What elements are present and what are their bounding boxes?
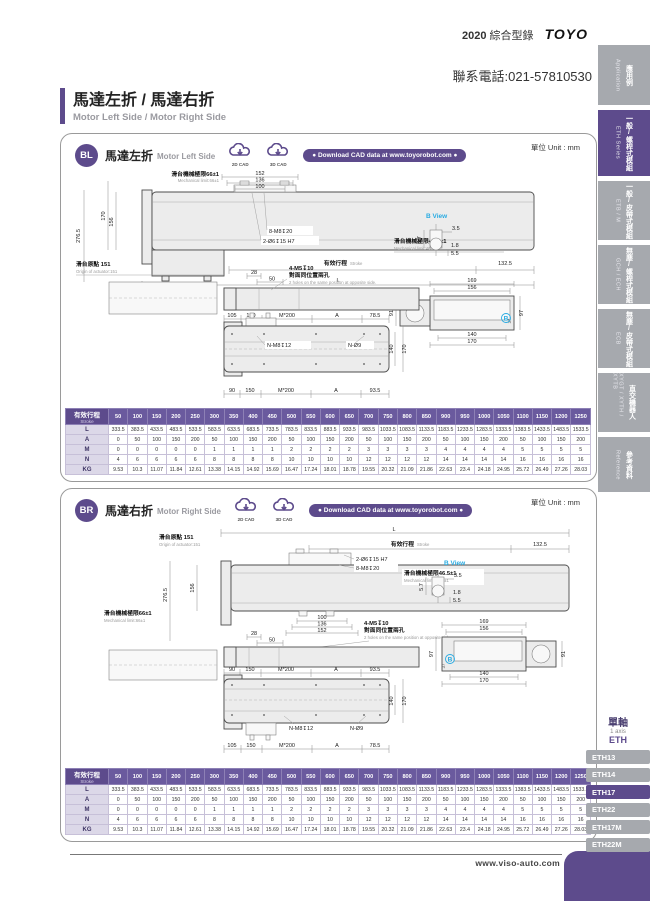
N-cell: 8 — [263, 815, 282, 825]
KG-cell: 11.07 — [147, 465, 166, 475]
KG-cell: 14.15 — [224, 825, 243, 835]
L-cell: 683.5 — [243, 425, 262, 435]
tab-label-zh: 直交機器人 — [627, 385, 637, 420]
ev-169: 169 — [479, 619, 488, 625]
dim-170: 170 — [101, 211, 107, 220]
L-cell: 633.5 — [224, 425, 243, 435]
A-cell: 150 — [320, 435, 339, 445]
stroke-header-cell: 600 — [320, 769, 339, 785]
stroke-en: Stroke — [350, 261, 363, 266]
N-cell: 12 — [417, 455, 436, 465]
A-cell: 200 — [417, 795, 436, 805]
stroke-header-cell: 550 — [301, 409, 320, 425]
A-cell: 200 — [340, 795, 359, 805]
N-cell: 8 — [243, 455, 262, 465]
stroke-header-zh: 有效行程 — [66, 769, 108, 779]
KG-cell: 20.32 — [378, 465, 397, 475]
KG-cell: 18.78 — [340, 465, 359, 475]
KG-cell: 27.26 — [552, 465, 571, 475]
stroke-header-cell: 650 — [340, 409, 359, 425]
origin-en: Origin of actuator:151 — [159, 542, 201, 547]
A-cell: 50 — [359, 795, 378, 805]
opp-holes-en: 2 holes on the same position at opposite… — [289, 280, 376, 285]
badge-br: BR — [75, 499, 98, 522]
KG-cell: 18.01 — [320, 825, 339, 835]
stroke-header-cell: 400 — [243, 769, 262, 785]
A-cell: 50 — [359, 435, 378, 445]
stroke-header-cell: 1200 — [552, 409, 571, 425]
contact-phone: 聯系電話:021-57810530 — [453, 66, 592, 85]
stroke-header-cell: 800 — [397, 769, 416, 785]
tab-label-zh: 無塵/皮帶式模組 — [624, 311, 634, 367]
sidebar-tab-ecb[interactable]: ECB 無塵/皮帶式模組 — [598, 309, 650, 368]
row2-A: A — [335, 743, 339, 749]
page-title: 馬達左折 / 馬達右折 Motor Left Side / Motor Righ… — [60, 86, 226, 123]
A-cell: 50 — [282, 795, 301, 805]
L-cell: 1133.5 — [417, 785, 436, 795]
stroke-header-cell: 950 — [455, 769, 474, 785]
M-cell: 3 — [397, 805, 416, 815]
M-cell: 4 — [475, 805, 494, 815]
N-cell: 8 — [205, 815, 224, 825]
mech-limit-66-zh: 滑台機械極限66±1 — [104, 609, 152, 617]
KG-cell: 24.18 — [475, 825, 494, 835]
ev-170: 170 — [467, 339, 476, 345]
L-cell: 1233.5 — [455, 425, 474, 435]
stroke-header-cell: 450 — [263, 409, 282, 425]
M-cell: 3 — [359, 445, 378, 455]
stroke-header-cell: 50 — [109, 409, 128, 425]
bv-5-5: 5.5 — [453, 598, 461, 604]
L-cell: 1033.5 — [378, 785, 397, 795]
bv-3-5: 3.5 — [454, 573, 462, 579]
L-cell: 1433.5 — [532, 425, 551, 435]
stroke-header-cell: 350 — [224, 409, 243, 425]
stroke-header-cell: 1100 — [513, 769, 532, 785]
row2-150: 150 — [245, 388, 254, 394]
A-cell: 50 — [128, 435, 147, 445]
download-cad-button[interactable]: ● Download CAD data at www.toyorobot.com… — [309, 504, 472, 517]
A-cell: 150 — [320, 795, 339, 805]
catalog-title: 2020 綜合型錄 TOYO — [462, 26, 588, 43]
A-cell: 200 — [417, 435, 436, 445]
dim-28: 28 — [251, 270, 257, 276]
cloud-download-icon — [227, 143, 253, 159]
series-group-code: ETH — [586, 735, 650, 745]
ev-170: 170 — [479, 678, 488, 684]
sidebar-tab-eth-series[interactable]: ETH Series 一般/螺桿式模組 — [598, 110, 650, 176]
KG-cell: 24.95 — [494, 465, 513, 475]
N-cell: 14 — [475, 815, 494, 825]
series-item-eth14[interactable]: ETH14 — [586, 768, 650, 782]
M-cell: 0 — [166, 805, 185, 815]
L-cell: 833.5 — [301, 425, 320, 435]
A-cell: 150 — [166, 435, 185, 445]
N-cell: 10 — [320, 455, 339, 465]
holes-2o6: 2-Ø6↧15 H7 — [356, 556, 388, 563]
dim-136: 136 — [317, 622, 326, 628]
n-m8: N-M8↧12 — [267, 342, 291, 349]
N-cell: 16 — [532, 815, 551, 825]
N-cell: 16 — [513, 815, 532, 825]
KG-cell: 21.86 — [417, 825, 436, 835]
stroke-header-cell: 700 — [359, 769, 378, 785]
row1-m200: M*200 — [279, 313, 295, 319]
KG-cell: 10.3 — [128, 465, 147, 475]
sidebar-tab-application[interactable]: Application 應用例 — [598, 45, 650, 105]
row-label-M: M — [66, 805, 109, 815]
catalog-year: 2020 — [462, 30, 486, 42]
b-marker: B — [448, 657, 453, 664]
br-end-view: 169 156 140 170 97 37 91 B — [429, 619, 567, 687]
ev-156: 156 — [479, 626, 488, 632]
series-item-eth22[interactable]: ETH22 — [586, 803, 650, 817]
series-item-eth17m[interactable]: ETH17M — [586, 820, 650, 834]
section-title-en: Motor Right Side — [157, 507, 221, 516]
origin-en: Origin of actuator:151 — [76, 269, 118, 274]
M-cell: 2 — [282, 805, 301, 815]
L-cell: 383.5 — [128, 785, 147, 795]
series-item-eth22m[interactable]: ETH22M — [586, 838, 650, 852]
row-label-N: N — [66, 455, 109, 465]
KG-cell: 23.4 — [455, 825, 474, 835]
M-cell: 1 — [263, 445, 282, 455]
N-cell: 16 — [513, 455, 532, 465]
stroke-header-zh: 有效行程 — [66, 409, 108, 419]
stroke-header-cell: 200 — [166, 769, 185, 785]
A-cell: 150 — [475, 795, 494, 805]
sidebar-tab-xy-robots[interactable]: XYGT / XYTH / XYTB 直交機器人 — [598, 373, 650, 432]
A-cell: 150 — [475, 435, 494, 445]
L-cell: 883.5 — [320, 425, 339, 435]
A-cell: 150 — [552, 435, 571, 445]
M-cell: 4 — [475, 445, 494, 455]
N-cell: 10 — [282, 815, 301, 825]
L-cell: 1183.5 — [436, 425, 455, 435]
L-cell: 1333.5 — [494, 785, 513, 795]
N-cell: 8 — [243, 815, 262, 825]
N-cell: 12 — [417, 815, 436, 825]
A-cell: 100 — [455, 795, 474, 805]
sidebar-tab-gch-ech[interactable]: GCH / ECH 無塵/螺桿式模組 — [598, 245, 650, 304]
cad-2d-download[interactable]: 2D CAD — [233, 498, 259, 522]
M-cell: 5 — [571, 445, 591, 455]
M-cell: 0 — [147, 445, 166, 455]
M-cell: 1 — [263, 805, 282, 815]
dim-50: 50 — [269, 277, 275, 283]
N-cell: 8 — [224, 815, 243, 825]
KG-cell: 22.63 — [436, 825, 455, 835]
A-cell: 100 — [301, 795, 320, 805]
series-group-zh: 單軸 — [586, 714, 650, 729]
A-cell: 0 — [109, 435, 128, 445]
N-cell: 6 — [186, 815, 205, 825]
stroke-header-cell: 1200 — [552, 769, 571, 785]
N-cell: 14 — [455, 815, 474, 825]
tab-label-en: ETB / M — [615, 199, 621, 222]
L-cell: 1033.5 — [378, 425, 397, 435]
row2-m200: M*200 — [279, 743, 295, 749]
row1-105: 105 — [227, 313, 236, 319]
row2-m200: M*200 — [278, 388, 294, 394]
row2-935: 93.5 — [370, 388, 381, 394]
KG-cell: 24.95 — [494, 825, 513, 835]
L-cell: 933.5 — [340, 425, 359, 435]
M-cell: 2 — [340, 445, 359, 455]
KG-cell: 11.07 — [147, 825, 166, 835]
L-cell: 483.5 — [166, 785, 185, 795]
stroke-header-cell: 800 — [397, 409, 416, 425]
KG-cell: 20.32 — [378, 825, 397, 835]
cad-3d-download[interactable]: 3D CAD — [271, 498, 297, 522]
ev-140: 140 — [467, 332, 476, 338]
stroke-header-cell: 250 — [186, 769, 205, 785]
L-cell: 333.5 — [109, 785, 128, 795]
stroke-header-cell: 1150 — [532, 409, 551, 425]
cad-2d-download[interactable]: 2D CAD — [227, 143, 253, 167]
M-cell: 4 — [494, 445, 513, 455]
A-cell: 200 — [263, 795, 282, 805]
A-cell: 50 — [513, 795, 532, 805]
row1-935: 93.5 — [370, 667, 381, 673]
row-label-L: L — [66, 425, 109, 435]
stroke-header-cell: 100 — [128, 769, 147, 785]
M-cell: 4 — [436, 805, 455, 815]
KG-cell: 16.47 — [282, 465, 301, 475]
bv-1-8: 1.8 — [451, 243, 459, 249]
mech-limit-465-zh: 滑台機械極限46.5±1 — [404, 569, 457, 577]
KG-cell: 22.63 — [436, 465, 455, 475]
opp-holes-zh: 對面同位置兩孔 — [364, 626, 405, 634]
A-cell: 100 — [224, 795, 243, 805]
tab-label-en: Reference — [615, 450, 621, 480]
A-cell: 100 — [301, 435, 320, 445]
bv-5-7: 5.7 — [417, 236, 423, 244]
KG-cell: 16.47 — [282, 825, 301, 835]
cloud-download-icon — [233, 498, 259, 514]
N-cell: 6 — [166, 455, 185, 465]
row1-m200: M*200 — [278, 667, 294, 673]
N-cell: 8 — [263, 455, 282, 465]
row-label-N: N — [66, 815, 109, 825]
M-cell: 3 — [397, 445, 416, 455]
cad-3d-download[interactable]: 3D CAD — [265, 143, 291, 167]
KG-cell: 17.24 — [301, 465, 320, 475]
N-cell: 16 — [571, 455, 591, 465]
ev-97: 97 — [519, 310, 525, 316]
dim-100: 100 — [255, 184, 264, 190]
mech-limit-66-en: Mechanical limit:66±1 — [104, 618, 146, 623]
KG-cell: 17.24 — [301, 825, 320, 835]
stroke-zh: 有效行程 — [391, 540, 414, 548]
M-cell: 3 — [378, 805, 397, 815]
A-cell: 100 — [532, 435, 551, 445]
M-cell: 5 — [513, 805, 532, 815]
KG-cell: 12.61 — [186, 825, 205, 835]
sidebar-tab-etb-m[interactable]: ETB / M 一般/皮帶式模組 — [598, 181, 650, 240]
dim-152: 152 — [255, 171, 264, 177]
N-cell: 14 — [494, 455, 513, 465]
KG-cell: 26.49 — [532, 465, 551, 475]
M-cell: 0 — [186, 805, 205, 815]
stroke-header-cell: 750 — [378, 769, 397, 785]
ev-169: 169 — [467, 278, 476, 284]
N-cell: 6 — [147, 455, 166, 465]
KG-cell: 18.78 — [340, 825, 359, 835]
row-label-M: M — [66, 445, 109, 455]
N-cell: 6 — [128, 455, 147, 465]
M-cell: 0 — [128, 805, 147, 815]
dim-28: 28 — [251, 631, 257, 637]
A-cell: 150 — [166, 795, 185, 805]
KG-cell: 28.03 — [571, 465, 591, 475]
stroke-header-cell: 700 — [359, 409, 378, 425]
row-label-KG: KG — [66, 465, 109, 475]
row1-A: A — [334, 667, 338, 673]
M-cell: 3 — [378, 445, 397, 455]
N-cell: 8 — [224, 455, 243, 465]
tab-label-zh: 一般/螺桿式模組 — [624, 115, 634, 171]
L-cell: 1433.5 — [532, 785, 551, 795]
KG-cell: 21.09 — [397, 465, 416, 475]
A-cell: 50 — [205, 795, 224, 805]
KG-cell: 21.09 — [397, 825, 416, 835]
tab-label-en: XYGT / XYTH / XYTB — [612, 373, 624, 432]
unit-label: 單位 Unit : mm — [531, 142, 580, 153]
L-cell: 983.5 — [359, 785, 378, 795]
bl-drawing: 152 136 100 滑台機械極限66±1 Mechanical limit:… — [64, 170, 594, 412]
A-cell: 100 — [147, 795, 166, 805]
A-cell: 150 — [397, 435, 416, 445]
M-cell: 4 — [494, 805, 513, 815]
M-cell: 3 — [417, 805, 436, 815]
N-cell: 10 — [340, 815, 359, 825]
stroke-header-en: Stroke — [66, 779, 108, 784]
M-cell: 2 — [301, 805, 320, 815]
unit-label: 單位 Unit : mm — [531, 497, 580, 508]
cad-3d-label: 3D CAD — [265, 162, 291, 167]
section-title-en: Motor Left Side — [157, 152, 215, 161]
row2-90: 90 — [229, 388, 235, 394]
L-cell: 1233.5 — [455, 785, 474, 795]
KG-cell: 18.01 — [320, 465, 339, 475]
cad-2d-label: 2D CAD — [227, 162, 253, 167]
M-cell: 3 — [359, 805, 378, 815]
bv-170: 170 — [402, 344, 408, 353]
tab-label-zh: 無塵/螺桿式模組 — [624, 247, 634, 303]
M-cell: 1 — [243, 445, 262, 455]
stroke-header-cell: 1050 — [494, 409, 513, 425]
row2-150: 150 — [246, 743, 255, 749]
footer-divider — [70, 854, 562, 855]
stroke-header-cell: 250 — [186, 409, 205, 425]
series-item-eth17[interactable]: ETH17 — [586, 785, 650, 799]
N-cell: 12 — [397, 815, 416, 825]
dim-132-5: 132.5 — [533, 542, 547, 548]
ev-97: 97 — [429, 651, 435, 657]
series-item-eth13[interactable]: ETH13 — [586, 750, 650, 764]
n-o9: N-Ø9 — [348, 343, 361, 349]
KG-cell: 27.26 — [552, 825, 571, 835]
KG-cell: 9.53 — [109, 465, 128, 475]
sidebar-tab-reference[interactable]: Reference 參考資料 — [598, 437, 650, 492]
bl-stroke-table: 有效行程 Stroke 5010015020025030035040045050… — [65, 408, 591, 475]
L-cell: 433.5 — [147, 425, 166, 435]
bv-170: 170 — [402, 696, 408, 705]
stroke-header-cell: 150 — [147, 769, 166, 785]
stroke-header-cell: 500 — [282, 769, 301, 785]
KG-cell: 15.69 — [263, 825, 282, 835]
M-cell: 5 — [552, 445, 571, 455]
M-cell: 5 — [532, 805, 551, 815]
cloud-download-icon — [271, 498, 297, 514]
M-cell: 0 — [147, 805, 166, 815]
M-cell: 0 — [109, 805, 128, 815]
stroke-header-cell: 1000 — [475, 769, 494, 785]
dim-152: 152 — [317, 628, 326, 634]
M-cell: 2 — [320, 805, 339, 815]
row1-785: 78.5 — [370, 313, 381, 319]
N-cell: 14 — [475, 455, 494, 465]
KG-cell: 24.18 — [475, 465, 494, 475]
stroke-header-cell: 1000 — [475, 409, 494, 425]
KG-cell: 14.92 — [243, 825, 262, 835]
L-cell: 1383.5 — [513, 785, 532, 795]
row-label-A: A — [66, 795, 109, 805]
N-cell: 4 — [109, 815, 128, 825]
section-title-zh: 馬達右折 — [105, 502, 153, 519]
KG-cell: 19.55 — [359, 825, 378, 835]
tab-label-en: ETH Series — [615, 126, 621, 159]
N-cell: 12 — [359, 455, 378, 465]
A-cell: 50 — [282, 435, 301, 445]
A-cell: 200 — [186, 795, 205, 805]
bv-1-8: 1.8 — [453, 590, 461, 596]
A-cell: 200 — [340, 435, 359, 445]
KG-cell: 25.72 — [513, 825, 532, 835]
stroke-header-cell: 1250 — [571, 409, 591, 425]
tab-label-en: GCH / ECH — [615, 258, 621, 291]
KG-cell: 10.3 — [128, 825, 147, 835]
bv-5-5: 5.5 — [451, 251, 459, 257]
stroke-header: 有效行程 Stroke — [66, 769, 109, 785]
KG-cell: 11.84 — [166, 825, 185, 835]
KG-cell: 23.4 — [455, 465, 474, 475]
stroke-header-cell: 550 — [301, 769, 320, 785]
stroke-header-cell: 500 — [282, 409, 301, 425]
M-cell: 1 — [224, 805, 243, 815]
footer-url[interactable]: www.viso-auto.com — [430, 858, 560, 868]
tab-label-en: Application — [615, 59, 621, 91]
A-cell: 200 — [571, 435, 591, 445]
title-accent-bar — [60, 88, 65, 124]
cloud-download-icon — [265, 143, 291, 159]
catalog-name: 綜合型錄 — [490, 30, 534, 42]
stroke-header-cell: 1100 — [513, 409, 532, 425]
A-cell: 0 — [109, 795, 128, 805]
holes-8m8: 8-M8↧20 — [269, 228, 292, 235]
br-side-view: L 滑台原點 151 Origin of actuator:151 有效行程 S… — [104, 527, 569, 649]
download-cad-button[interactable]: ● Download CAD data at www.toyorobot.com… — [303, 149, 466, 162]
M-cell: 5 — [532, 445, 551, 455]
A-cell: 100 — [224, 435, 243, 445]
N-cell: 14 — [494, 815, 513, 825]
stroke-header-cell: 200 — [166, 409, 185, 425]
dim-156: 156 — [190, 583, 196, 592]
N-cell: 6 — [147, 815, 166, 825]
row2-785: 78.5 — [370, 743, 381, 749]
N-cell: 12 — [378, 815, 397, 825]
